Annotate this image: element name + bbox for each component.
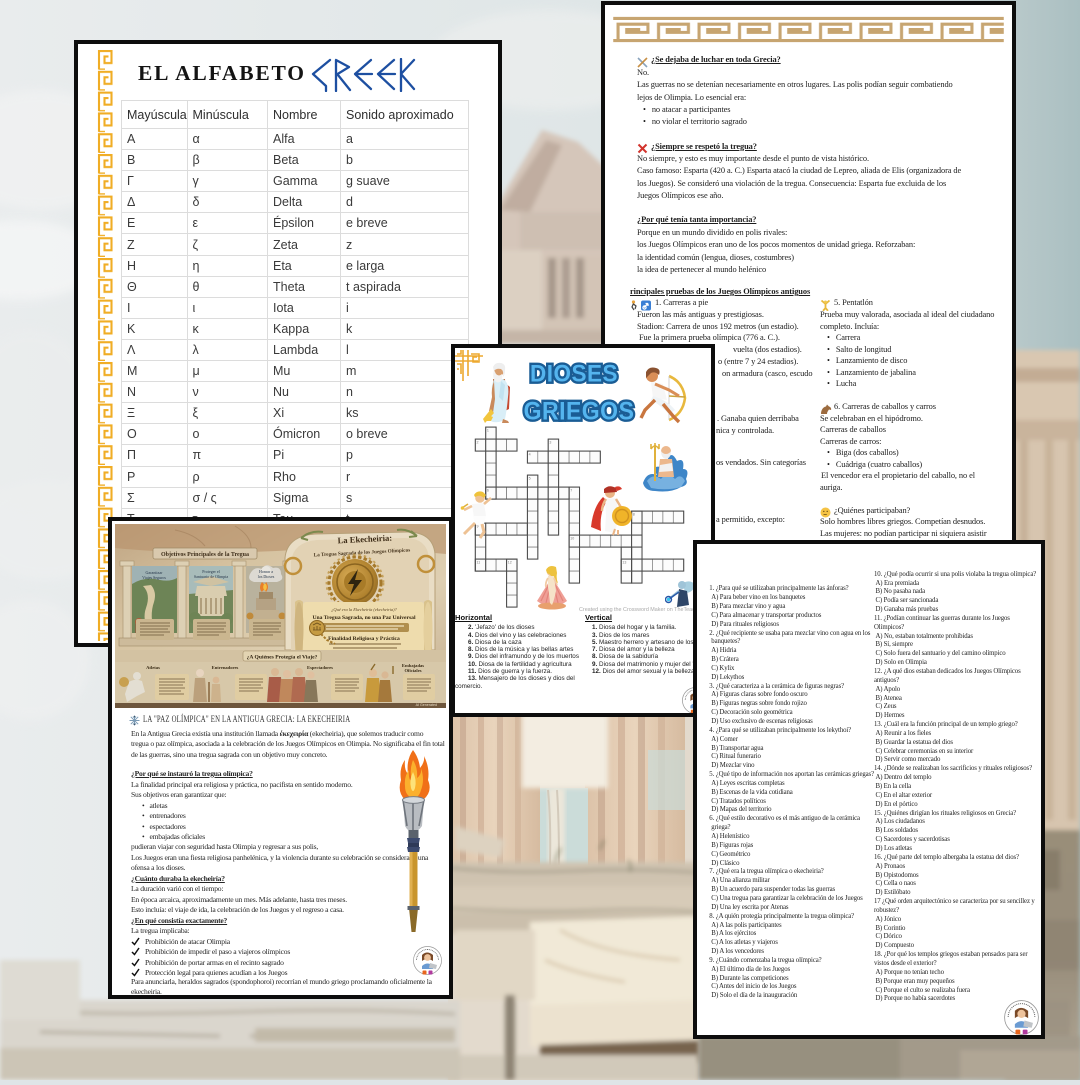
- svg-text:3: 3: [549, 441, 551, 445]
- svg-text:Viajes Seguros: Viajes Seguros: [142, 575, 166, 580]
- svg-text:Oficiales: Oficiales: [404, 668, 421, 673]
- svg-text:11: 11: [477, 561, 481, 565]
- svg-text:2: 2: [477, 441, 479, 445]
- svg-text:¿A Quiénes Protegía el Viaje?: ¿A Quiénes Protegía el Viaje?: [247, 655, 318, 661]
- svg-text:12: 12: [508, 561, 512, 565]
- svg-text:7: 7: [570, 489, 572, 493]
- svg-text:Atletas: Atletas: [146, 665, 160, 670]
- svg-text:8: 8: [633, 513, 635, 517]
- svg-text:Santuario de Olimpia: Santuario de Olimpia: [194, 574, 228, 579]
- svg-text:10: 10: [570, 537, 574, 541]
- svg-text:¿Qué era la Ekecheiría (ekeche: ¿Qué era la Ekecheiría (ekecheiria)?: [331, 607, 397, 612]
- svg-text:1: 1: [487, 429, 489, 433]
- svg-text:Espectadores: Espectadores: [307, 665, 333, 670]
- svg-text:Finalidad Religiosa y Práctica: Finalidad Religiosa y Práctica: [328, 636, 400, 642]
- svg-text:los Dioses: los Dioses: [258, 574, 275, 579]
- svg-text:5: 5: [529, 477, 531, 481]
- svg-text:Entrenadores: Entrenadores: [212, 665, 239, 670]
- svg-text:AI Generated: AI Generated: [416, 703, 437, 707]
- svg-text:13: 13: [622, 561, 626, 565]
- svg-text:Una Tregua Sagrada, no una Paz: Una Tregua Sagrada, no una Paz Universal: [312, 615, 415, 621]
- svg-text:4: 4: [529, 453, 531, 457]
- svg-text:Objetivos Principales de la Tr: Objetivos Principales de la Tregua: [161, 552, 249, 558]
